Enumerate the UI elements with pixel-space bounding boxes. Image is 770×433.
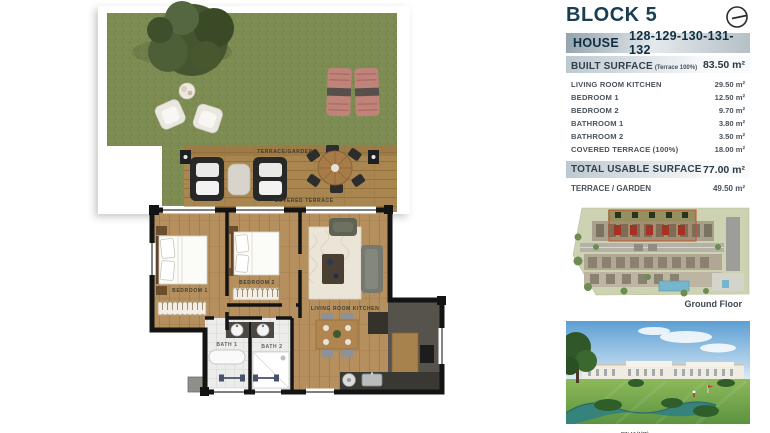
total-surface-row: TOTAL USABLE SURFACE 77.00 m²: [566, 161, 750, 178]
site-plan-caption: Ground Floor: [566, 299, 750, 309]
spec-panel: BLOCK 5 HOUSE 128-129-130-131-132 BUILT …: [566, 4, 750, 433]
table-row: BATHROOM 2 3.50 m²: [571, 130, 745, 143]
bath2-label: BATH 2: [261, 344, 282, 350]
terrace-garden-row: TERRACE / GARDEN 49.50 m²: [566, 181, 750, 195]
built-surface-row: BUILT SURFACE(Terrace 100%) 83.50 m²: [566, 56, 750, 73]
terrace-lounge-chair: [253, 157, 287, 201]
highlighted-units: [609, 210, 696, 241]
table-row: BATHROOM 1 3.80 m²: [571, 117, 745, 130]
garden-side-table: [179, 83, 195, 99]
site-plan: [566, 207, 750, 297]
table-row: COVERED TERRACE (100%) 18.00 m²: [571, 143, 745, 156]
pool: [659, 281, 689, 291]
total-surface-label: TOTAL USABLE SURFACE: [571, 164, 702, 175]
panel-header: BLOCK 5: [566, 4, 750, 30]
built-surface-value: 83.50 m²: [703, 59, 745, 71]
terrace-garden-label: TERRACE/GARDEN: [257, 149, 313, 155]
bedroom2-furniture: [229, 226, 279, 300]
covered-terrace-label: COVERED TERRACE: [274, 198, 333, 204]
table-row: LIVING ROOM KITCHEN 29.50 m²: [571, 78, 745, 91]
brochure-page: TERRACE/GARDEN COVERED TERRACE BEDROOM 1: [0, 0, 770, 433]
terrace-coffee-table: [228, 164, 250, 195]
table-row: BEDROOM 1 12.50 m²: [571, 91, 745, 104]
built-surface-label: BUILT SURFACE: [571, 61, 653, 72]
sun-lounger: [326, 68, 352, 117]
bath1-label: BATH 1: [216, 342, 237, 348]
bedroom1-furniture: [156, 226, 207, 315]
golf-course-photo: [566, 321, 750, 424]
total-surface-value: 77.00 m²: [703, 164, 745, 176]
table-row: BEDROOM 2 9.70 m²: [571, 104, 745, 117]
sun-lounger: [354, 68, 380, 117]
house-label: HOUSE: [573, 36, 619, 50]
living-label: LIVING ROOM KITCHEN: [311, 306, 380, 312]
compass-icon: [724, 4, 750, 30]
buildings: [582, 361, 744, 381]
surface-details: LIVING ROOM KITCHEN 29.50 m² BEDROOM 1 1…: [566, 73, 750, 158]
built-surface-note: (Terrace 100%): [655, 65, 697, 71]
house-header: HOUSE 128-129-130-131-132: [566, 33, 750, 53]
bedroom2-label: BEDROOM 2: [239, 280, 275, 286]
bedroom1-label: BEDROOM 1: [172, 288, 208, 294]
house-numbers: 128-129-130-131-132: [629, 29, 743, 57]
floor-plan: TERRACE/GARDEN COVERED TERRACE BEDROOM 1: [0, 0, 560, 433]
terrace-lounge-chair: [190, 157, 224, 201]
page-title: BLOCK 5: [566, 4, 657, 27]
